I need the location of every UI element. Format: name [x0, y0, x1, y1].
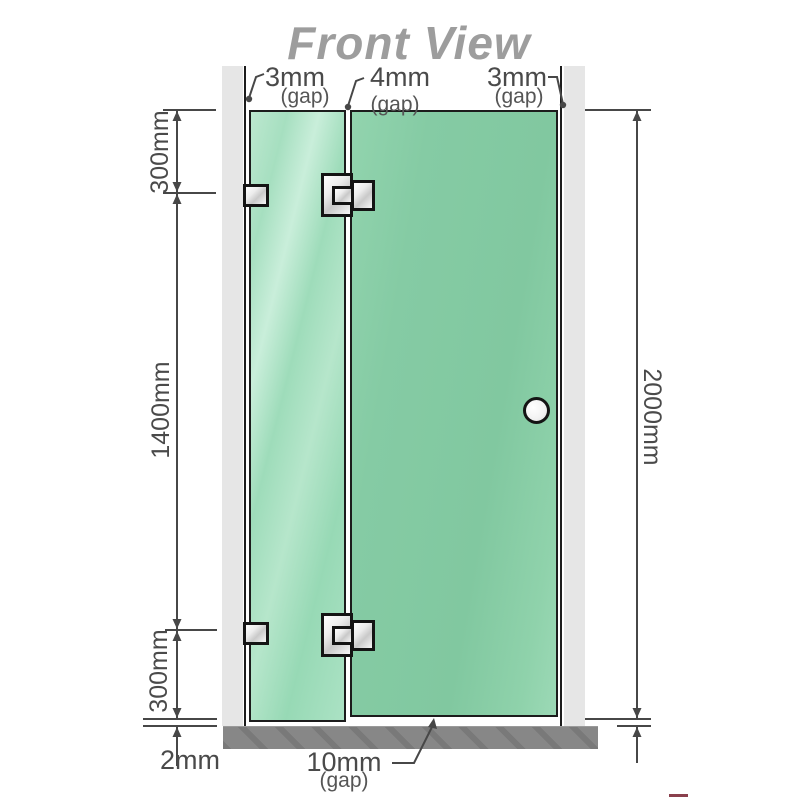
gap-label-middle-qualifier: (gap) [340, 94, 450, 115]
wall-bracket-top [243, 184, 269, 207]
dim-right-height: 2000mm [639, 357, 665, 477]
dim-left-top: 300mm [147, 92, 173, 212]
dim-left-middle: 1400mm [148, 350, 174, 470]
watermark-sliver [669, 794, 688, 797]
hinge-bottom [321, 613, 377, 659]
door-knob [523, 397, 550, 424]
gap-label-right-qualifier: (gap) [464, 86, 574, 107]
hinge-top-tab [332, 186, 354, 205]
wall-bracket-bottom [243, 622, 269, 645]
floor-slab [223, 726, 598, 749]
right-wall-line [560, 66, 562, 726]
dim-floor-gap: 2mm [135, 747, 245, 774]
hinge-top [321, 173, 377, 219]
left-wall-channel [222, 66, 243, 726]
gap-label-middle-value: 4mm [345, 64, 455, 91]
hinge-bottom-tab [332, 626, 354, 645]
hinge-bottom-right-plate [351, 620, 375, 651]
dim-door-gap-qualifier: (gap) [289, 770, 399, 791]
dim-left-bottom: 300mm [146, 611, 172, 731]
hinge-top-right-plate [351, 180, 375, 211]
right-wall-channel [564, 66, 585, 726]
front-view-diagram: Front View [0, 0, 800, 800]
